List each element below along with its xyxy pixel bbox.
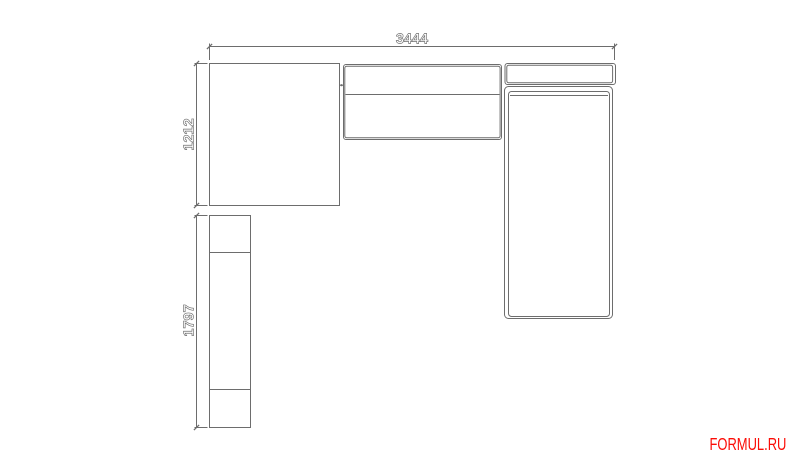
- svg-text:FORMUL.RU: FORMUL.RU: [710, 435, 787, 454]
- svg-text:3444: 3444: [396, 32, 428, 48]
- svg-text:1212: 1212: [181, 118, 197, 150]
- svg-text:1797: 1797: [181, 304, 197, 336]
